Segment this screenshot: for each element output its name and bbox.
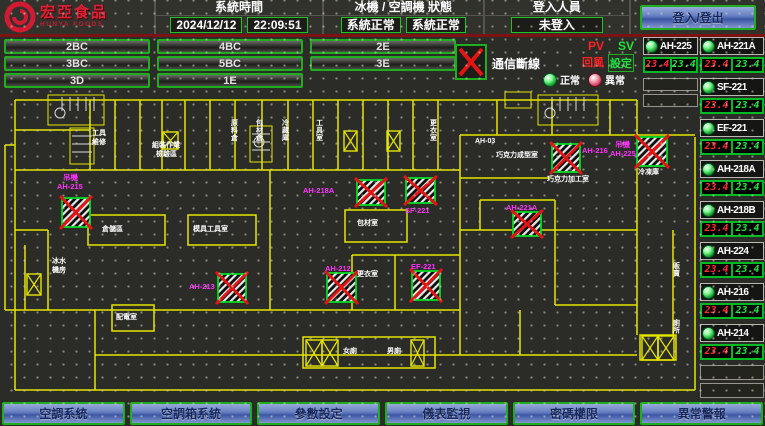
abnormal-legend-label: 異常 [605, 72, 625, 87]
system-date-value: 2024/12/12 [170, 17, 242, 33]
sv-value: 23.4 [732, 181, 763, 195]
ahu-unit-ah-224[interactable]: AH-22423.423.4 [700, 242, 764, 278]
machine-status-label: 冰機 / 空調機 狀態 [324, 0, 483, 16]
ahu-unit-ah-216[interactable]: AH-21623.423.4 [700, 283, 764, 319]
empty-slot [643, 78, 698, 91]
ahu-comm-fail-marker[interactable] [404, 176, 437, 205]
ahu-unit-ah-218b[interactable]: AH-218B23.423.4 [700, 201, 764, 237]
abnormal-led-icon [588, 73, 602, 87]
nav-button-0[interactable]: 空調系統 [2, 402, 125, 425]
plan-room-label: 更衣室 [430, 119, 438, 142]
ahu-comm-fail-marker[interactable] [511, 210, 543, 238]
plan-room-label: 配電室 [116, 312, 137, 321]
zone-button-3bc[interactable]: 3BC [4, 56, 150, 71]
plan-room-label: 男廁 [387, 346, 401, 355]
zone-button-3e[interactable]: 3E [310, 56, 456, 71]
sv-value: 23.4 [732, 345, 763, 359]
zone-button-grid: 2BC4BC2E3BC5BC3E3D1E [4, 39, 456, 88]
plan-ahu-label: AH-221A [506, 203, 538, 212]
sv-value: 23.4 [732, 263, 763, 277]
ahu-unit-ef-221[interactable]: EF-22123.423.4 [700, 119, 764, 155]
plan-room-label: 女廁 [343, 346, 357, 355]
pv-value: 23.4 [701, 140, 732, 154]
sv-value: 23.4 [671, 58, 698, 72]
plan-room-label: 模具工具室 [193, 224, 228, 233]
sv-legend: SV [618, 39, 634, 53]
floor-plan: 吊機AH-215AH-218ASF-221AH-221AAH-216吊機AH-2… [0, 86, 700, 400]
empty-slot [700, 365, 764, 380]
plan-ahu-label: AH-216 [582, 146, 608, 155]
plan-room-label: 巧克力成型室 [496, 150, 538, 159]
zone-button-1e[interactable]: 1E [157, 73, 303, 88]
plan-ahu-label: EF-221 [411, 262, 436, 271]
plan-room-label: 檢驗區 [156, 149, 177, 158]
ahu-comm-fail-marker[interactable] [216, 272, 248, 304]
ahu-name: AH-216 [717, 287, 748, 298]
login-logout-button[interactable]: 登入/登出 [640, 5, 756, 30]
status-led-icon [702, 327, 715, 340]
pv-value: 23.4 [701, 222, 732, 236]
shaft-box [387, 131, 400, 151]
pv-value: 23.4 [701, 304, 732, 318]
empty-slot [643, 94, 698, 107]
plan-room-label: 包材倉 [255, 118, 264, 142]
plan-ahu-label: AH-215 [57, 182, 83, 191]
hmi-root: { "header": { "logo": {"title": "宏亞食品", … [0, 0, 765, 426]
plan-ahu-label: SF-221 [405, 206, 430, 215]
empty-slot [700, 383, 764, 398]
ahu-unit-sf-221[interactable]: SF-22123.423.4 [700, 78, 764, 114]
plan-room-label: 組裝作業 [152, 140, 181, 149]
shaft-box [27, 274, 41, 295]
ahu-status-panel: AH-22523.423.4 AH-221A23.423.4SF-22123.4… [643, 37, 764, 401]
ahu-name: SF-221 [717, 82, 747, 93]
plan-room-label: 巧克力加工室 [547, 174, 589, 183]
status-led-icon [702, 81, 715, 94]
pv-value: 23.4 [701, 263, 732, 277]
chiller-status-value: 系統正常 [341, 17, 401, 33]
pv-legend: PV [588, 39, 604, 53]
plan-ahu-label: 吊機 [615, 139, 630, 149]
ahu-name: AH-218B [717, 205, 755, 216]
ahu-comm-fail-marker[interactable] [355, 178, 387, 207]
ahu-unit-ah-218a[interactable]: AH-218A23.423.4 [700, 160, 764, 196]
pv-value: 23.4 [701, 99, 732, 113]
ahu-name: AH-218A [717, 164, 755, 175]
section-system-time: 系統時間 2024/12/12 22:09:51 [154, 0, 322, 34]
zone-button-2bc[interactable]: 2BC [4, 39, 150, 54]
normal-led-icon [543, 73, 557, 87]
ahu-name: EF-221 [717, 123, 747, 134]
ahu-comm-fail-marker[interactable] [325, 271, 358, 304]
ahu-unit-ah-214[interactable]: AH-21423.423.4 [700, 324, 764, 360]
section-login-user: 登入人員 未登入 [483, 0, 629, 34]
pv-value: 23.4 [701, 345, 732, 359]
comm-fail-label: 通信斷線 [492, 55, 540, 72]
header-bar: 宏亞食品 HUNYA FOODS 系統時間 2024/12/12 22:09:5… [0, 0, 765, 37]
zone-button-5bc[interactable]: 5BC [157, 56, 303, 71]
nav-button-3[interactable]: 儀表監視 [385, 402, 508, 425]
status-led-icon [702, 286, 715, 299]
abnormal-legend: 異常 [588, 72, 625, 87]
ahu-status-value: 系統正常 [406, 17, 466, 33]
comm-fail-icon [455, 40, 487, 84]
normal-legend-label: 正常 [560, 72, 580, 87]
system-time-label: 系統時間 [156, 0, 322, 16]
plan-room-label: 倉儲區 [101, 224, 123, 233]
plan-ahu-label: AH-212 [325, 264, 351, 273]
setpoint-legend: 設定 [608, 54, 634, 72]
ahu-name: AH-225 [660, 41, 691, 52]
plan-room-label: 機房 [52, 265, 66, 274]
pv-value: 23.4 [644, 58, 671, 72]
nav-button-2[interactable]: 參數設定 [257, 402, 380, 425]
status-led-icon [702, 204, 715, 217]
zone-button-3d[interactable]: 3D [4, 73, 150, 88]
status-led-icon [702, 40, 715, 53]
pv-value: 23.4 [701, 58, 732, 72]
nav-button-5[interactable]: 異常警報 [640, 402, 763, 425]
ahu-panel-column-left: AH-22523.423.4 [643, 37, 698, 110]
shaft-box [344, 131, 357, 151]
zone-button-2e[interactable]: 2E [310, 39, 456, 54]
sv-value: 23.4 [732, 140, 763, 154]
logo: 宏亞食品 HUNYA FOODS [0, 0, 154, 34]
shaft-box [411, 340, 424, 366]
ahu-name: AH-221A [717, 41, 755, 52]
status-led-icon [702, 122, 715, 135]
plan-room-label: 原料倉 [230, 119, 239, 142]
system-clock-value: 22:09:51 [247, 17, 307, 33]
shaft-box [322, 340, 338, 366]
ahu-comm-fail-marker[interactable] [550, 142, 582, 174]
sv-value: 23.4 [732, 99, 763, 113]
plan-ahu-label: AH-225 [610, 149, 636, 158]
section-machine-status: 冰機 / 空調機 狀態 系統正常 系統正常 [322, 0, 483, 34]
login-user-label: 登入人員 [485, 0, 629, 16]
status-led-icon [702, 163, 715, 176]
logo-title: 宏亞食品 [40, 5, 108, 20]
plan-ahu-label: 吊機 [63, 172, 78, 182]
plan-room-label: 冰水 [52, 256, 67, 265]
return-air-legend: 回風 [582, 54, 604, 70]
plan-room-label: AH-03 [475, 138, 495, 145]
plan-ahu-label: AH-218A [303, 186, 335, 195]
floor-plan-walls [5, 100, 695, 390]
plan-room-label: 工具室 [315, 119, 323, 142]
zone-button-4bc[interactable]: 4BC [157, 39, 303, 54]
sv-value: 23.4 [732, 58, 763, 72]
sv-value: 23.4 [732, 304, 763, 318]
plan-room-label: 更衣室 [357, 269, 378, 278]
plan-room-label: 冷藏庫 [282, 118, 289, 142]
hunya-logo-icon [4, 1, 36, 33]
ahu-comm-fail-marker[interactable] [60, 196, 92, 229]
nav-button-4[interactable]: 密碼權限 [513, 402, 636, 425]
login-user-value: 未登入 [511, 17, 603, 33]
sv-value: 23.4 [732, 222, 763, 236]
bottom-nav-bar: 空調系統空調箱系統參數設定儀表監視密碼權限異常警報 [2, 402, 763, 425]
ahu-name: AH-214 [717, 328, 748, 339]
logo-subtitle: HUNYA FOODS [40, 22, 108, 29]
ahu-comm-fail-marker[interactable] [410, 269, 442, 302]
pv-value: 23.4 [701, 181, 732, 195]
status-led-icon [702, 245, 715, 258]
plan-room-label: 維修 [92, 137, 107, 146]
normal-legend: 正常 [543, 72, 580, 87]
status-led-icon [645, 40, 658, 53]
plan-ahu-label: AH-213 [189, 282, 215, 291]
plan-room-label: 包材室 [357, 218, 378, 227]
ahu-panel-column-right: AH-221A23.423.4SF-22123.423.4EF-22123.42… [700, 37, 764, 401]
ahu-unit-ah-225[interactable]: AH-22523.423.4 [643, 37, 698, 73]
nav-button-1[interactable]: 空調箱系統 [130, 402, 253, 425]
plan-room-label: 工具 [92, 128, 106, 137]
ahu-unit-ah-221a[interactable]: AH-221A23.423.4 [700, 37, 764, 73]
ahu-name: AH-224 [717, 246, 748, 257]
shaft-box [306, 340, 322, 366]
